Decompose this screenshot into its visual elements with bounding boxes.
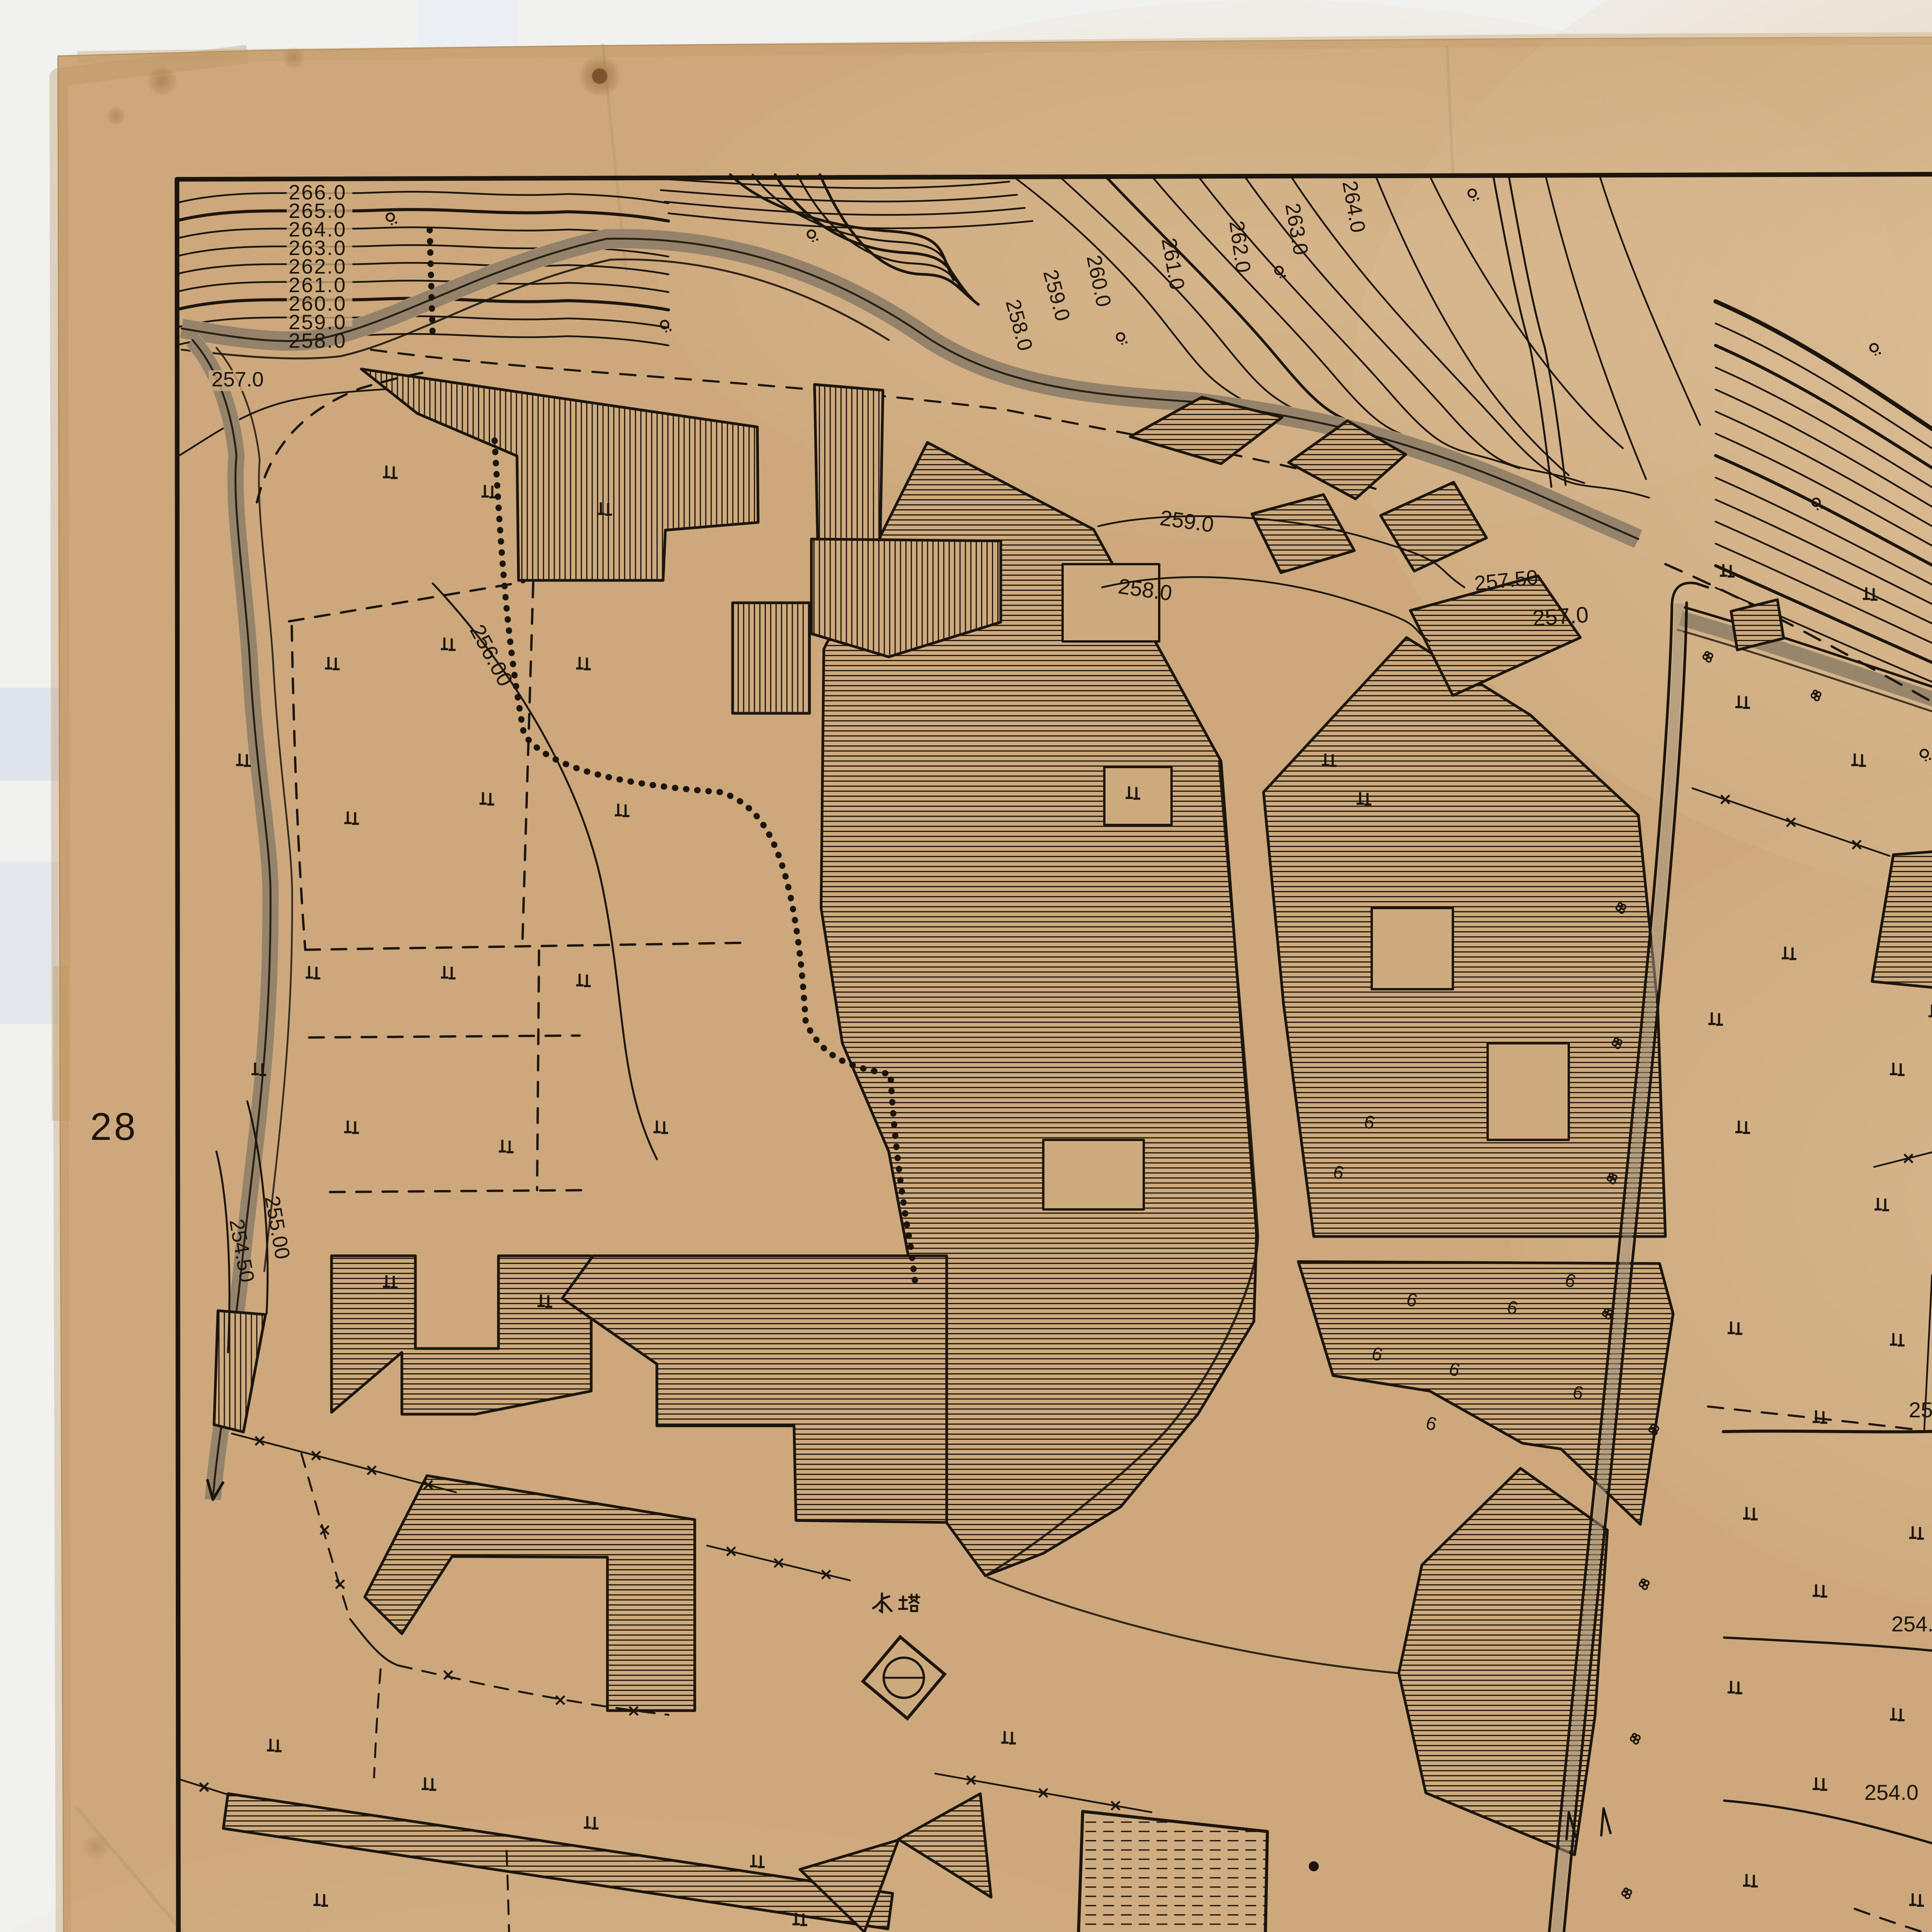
svg-text:258.0: 258.0 bbox=[289, 329, 347, 352]
svg-text:257.0: 257.0 bbox=[1532, 602, 1589, 631]
svg-text:257.0: 257.0 bbox=[211, 368, 264, 391]
svg-text:28: 28 bbox=[90, 1105, 138, 1148]
svg-text:254.5: 254.5 bbox=[1891, 1612, 1932, 1636]
svg-text:255.0: 255.0 bbox=[1909, 1398, 1932, 1422]
svg-text:254.0: 254.0 bbox=[1864, 1780, 1918, 1804]
